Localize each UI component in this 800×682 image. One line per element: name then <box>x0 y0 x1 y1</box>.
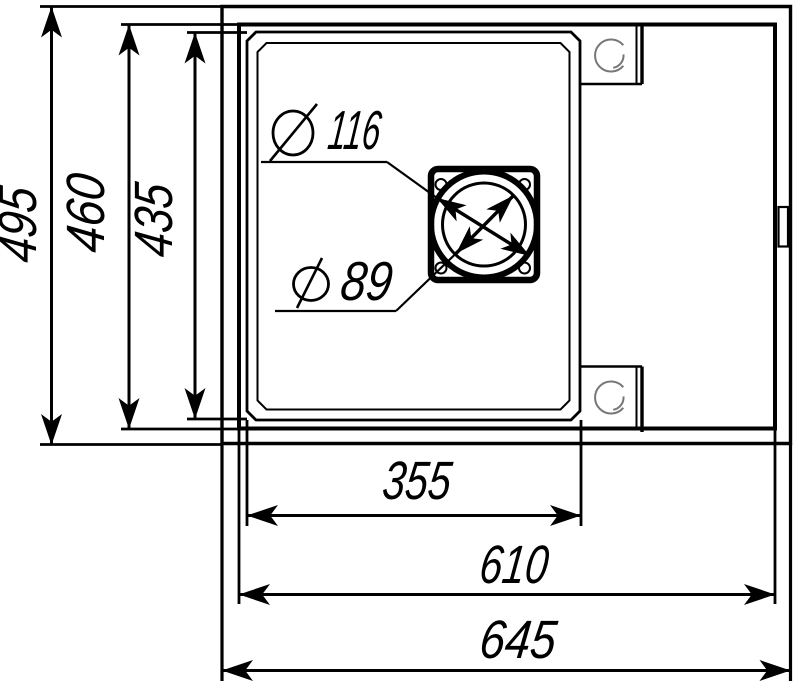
svg-text:355: 355 <box>380 451 456 511</box>
svg-text:645: 645 <box>477 610 561 670</box>
svg-text:495: 495 <box>0 182 48 265</box>
svg-text:610: 610 <box>477 535 552 595</box>
svg-text:460: 460 <box>56 170 116 255</box>
svg-text:89: 89 <box>338 250 397 312</box>
svg-text:116: 116 <box>325 99 385 161</box>
svg-text:435: 435 <box>124 179 184 260</box>
